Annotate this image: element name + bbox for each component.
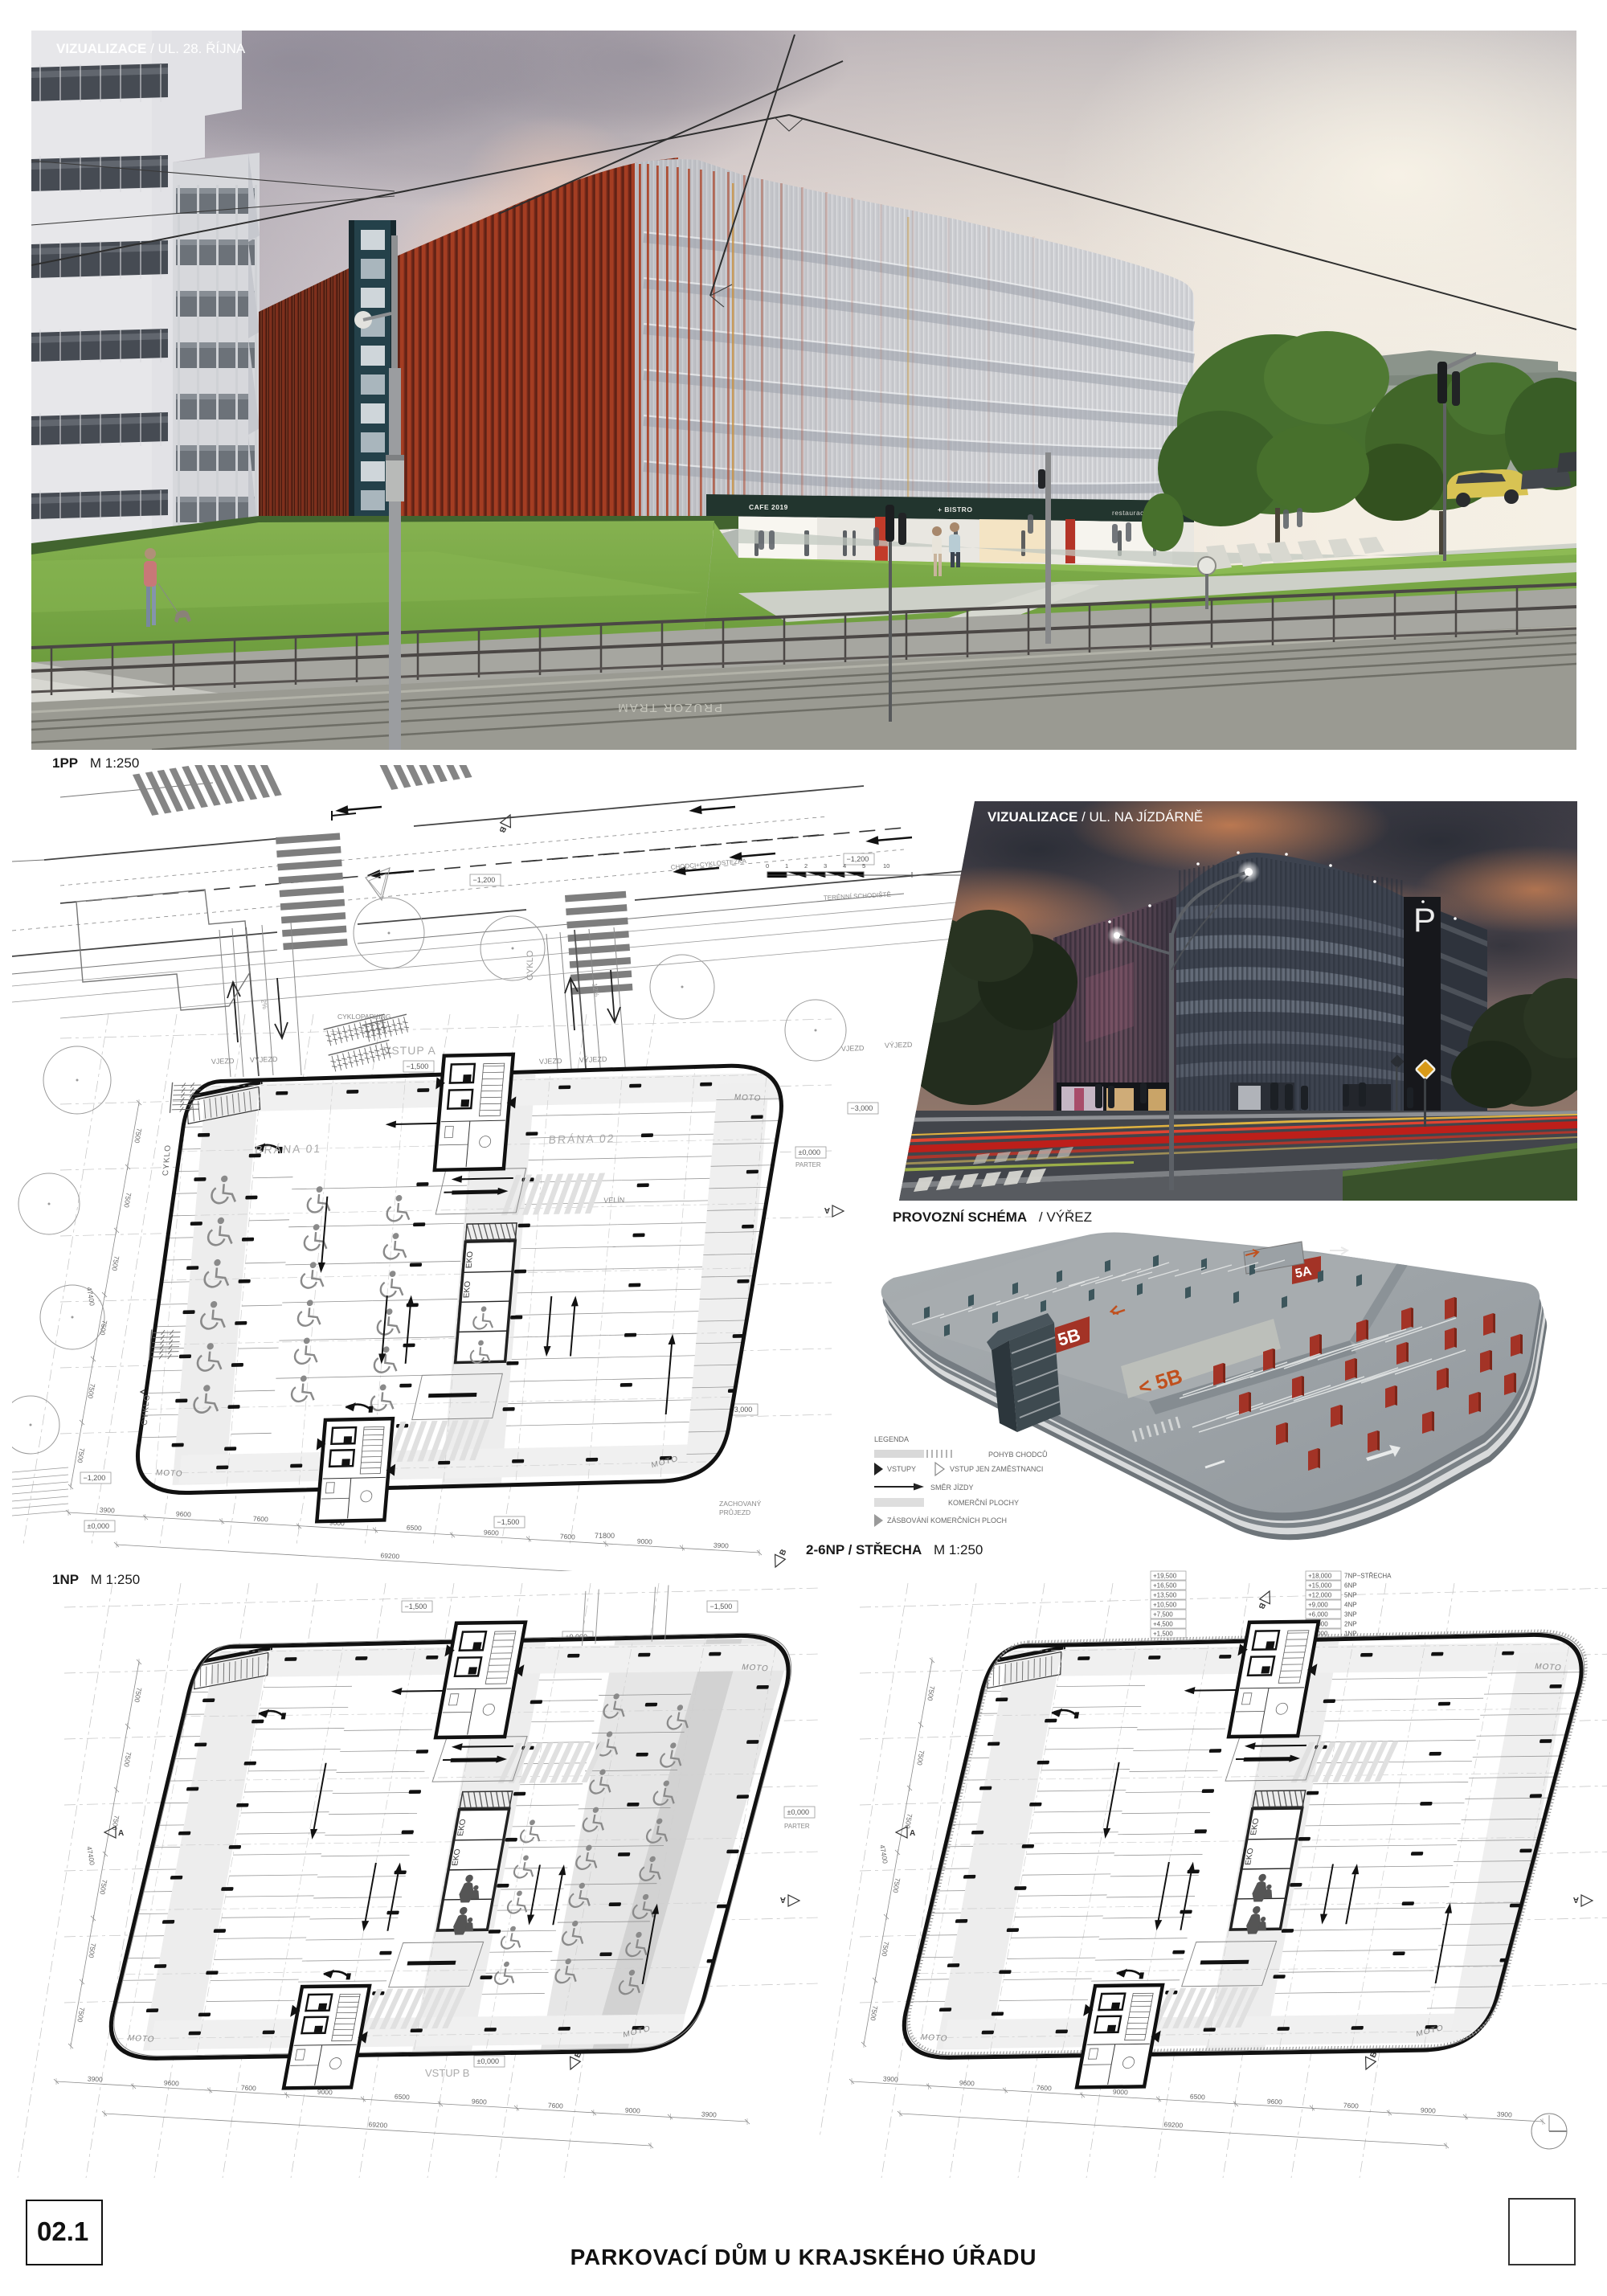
svg-text:VSTUP JEN ZAMĚSTNANCI: VSTUP JEN ZAMĚSTNANCI (950, 1465, 1043, 1473)
svg-text:+16,500: +16,500 (1153, 1582, 1177, 1590)
svg-text:VELÍN: VELÍN (603, 1196, 625, 1205)
svg-text:MOTO: MOTO (741, 1663, 770, 1673)
svg-text:9000: 9000 (625, 2106, 641, 2114)
svg-text:VSTUPY: VSTUPY (887, 1465, 916, 1473)
svg-text:7600: 7600 (253, 1514, 269, 1523)
svg-text:+4,500: +4,500 (1153, 1621, 1173, 1628)
svg-text:3900: 3900 (883, 2074, 899, 2083)
svg-text:−1,200: −1,200 (473, 876, 496, 884)
svg-text:5NP: 5NP (1344, 1592, 1357, 1599)
svg-text:1: 1 (785, 862, 788, 870)
svg-text:71800: 71800 (595, 1532, 615, 1540)
svg-text:A: A (780, 1895, 786, 1904)
svg-text:CYKLO: CYKLO (162, 1144, 173, 1176)
svg-text:+13,500: +13,500 (1153, 1592, 1177, 1599)
svg-text:VJEZD: VJEZD (539, 1057, 562, 1066)
svg-text:3900: 3900 (714, 1541, 730, 1549)
svg-text:BRÁNA 01: BRÁNA 01 (255, 1142, 322, 1156)
svg-text:3900: 3900 (701, 2110, 718, 2118)
svg-text:VÝJEZD: VÝJEZD (250, 1055, 278, 1064)
svg-text:47400: 47400 (85, 1287, 96, 1307)
svg-text:+10,500: +10,500 (1153, 1602, 1177, 1609)
svg-text:VIZUALIZACE / UL. NA JÍZDÁRNĚ: VIZUALIZACE / UL. NA JÍZDÁRNĚ (988, 809, 1203, 825)
svg-text:±0,000: ±0,000 (88, 1522, 109, 1530)
svg-text:3: 3 (824, 862, 827, 870)
svg-text:PRŮJEZD: PRŮJEZD (719, 1508, 750, 1516)
svg-text:9600: 9600 (1267, 2097, 1283, 2106)
svg-text:PARTER: PARTER (784, 1823, 810, 1830)
svg-text:4NP: 4NP (1344, 1602, 1357, 1609)
svg-text:6NP: 6NP (1344, 1582, 1357, 1590)
svg-text:PARTER: PARTER (795, 1161, 821, 1168)
svg-text:9000: 9000 (637, 1537, 653, 1545)
svg-text:9000: 9000 (1421, 2106, 1437, 2114)
svg-text:+18,000: +18,000 (1308, 1573, 1332, 1580)
svg-text:9600: 9600 (484, 1528, 500, 1537)
svg-text:3NP: 3NP (1344, 1611, 1357, 1619)
svg-text:9600: 9600 (472, 2097, 488, 2106)
svg-text:VSTUP A: VSTUP A (383, 1044, 436, 1057)
svg-text:9600: 9600 (164, 2078, 180, 2087)
svg-text:2%: 2% (260, 999, 269, 1010)
svg-text:KOMERČNÍ PLOCHY: KOMERČNÍ PLOCHY (948, 1499, 1019, 1507)
svg-text:A: A (910, 1829, 915, 1838)
svg-text:7600: 7600 (548, 2101, 564, 2110)
svg-text:MOTO: MOTO (920, 2033, 949, 2044)
svg-text:7500: 7500 (110, 1255, 121, 1272)
svg-text:12%: 12% (591, 983, 601, 998)
svg-text:7500: 7500 (903, 1813, 914, 1830)
svg-text:MOTO: MOTO (127, 2034, 156, 2044)
svg-text:2: 2 (804, 862, 808, 870)
svg-text:CYKLOPARKING: CYKLOPARKING (337, 1013, 391, 1021)
svg-text:69200: 69200 (1163, 2120, 1183, 2129)
svg-text:+19,500: +19,500 (1153, 1573, 1177, 1580)
svg-text:−1,500: −1,500 (710, 1602, 733, 1610)
svg-text:MOTO: MOTO (155, 1468, 183, 1479)
svg-text:7600: 7600 (241, 2083, 257, 2092)
svg-text:47400: 47400 (878, 1844, 889, 1864)
svg-text:BRÁNA 02: BRÁNA 02 (548, 1132, 615, 1146)
svg-text:EKO: EKO (464, 1251, 475, 1269)
svg-text:+ BISTRO: + BISTRO (938, 505, 972, 514)
svg-text:MOTO: MOTO (734, 1093, 762, 1103)
svg-text:+7,500: +7,500 (1153, 1611, 1173, 1619)
svg-text:SMĚR JÍZDY: SMĚR JÍZDY (930, 1484, 974, 1492)
svg-text:47400: 47400 (85, 1846, 96, 1866)
svg-text:−1,500: −1,500 (497, 1518, 520, 1526)
svg-text:+1,500: +1,500 (1153, 1631, 1173, 1638)
svg-text:7600: 7600 (1343, 2101, 1360, 2110)
svg-text:9600: 9600 (959, 2078, 975, 2087)
svg-text:69200: 69200 (368, 2120, 387, 2129)
svg-text:3900: 3900 (88, 2074, 104, 2083)
svg-text:A: A (1573, 1895, 1579, 1904)
svg-text:±0,000: ±0,000 (477, 2057, 499, 2065)
svg-text:VJEZD: VJEZD (211, 1057, 235, 1066)
svg-text:+12,000: +12,000 (1308, 1592, 1332, 1599)
svg-text:CYKLO: CYKLO (525, 950, 535, 980)
svg-text:MOTO: MOTO (1534, 1662, 1563, 1672)
svg-text:0: 0 (766, 862, 769, 870)
svg-text:VSTUP B: VSTUP B (425, 2067, 469, 2079)
svg-text:PRUZOR TRAM: PRUZOR TRAM (616, 701, 722, 714)
svg-text:9600: 9600 (176, 1509, 192, 1518)
svg-text:7NP−STŘECHA: 7NP−STŘECHA (1344, 1573, 1392, 1580)
svg-text:10: 10 (883, 862, 889, 870)
svg-text:5: 5 (862, 862, 865, 870)
svg-text:7500: 7500 (122, 1192, 133, 1209)
svg-text:POHYB CHODCŮ: POHYB CHODCŮ (988, 1450, 1048, 1459)
svg-text:6500: 6500 (395, 2092, 411, 2101)
svg-text:P: P (1413, 901, 1436, 939)
svg-text:69200: 69200 (380, 1551, 399, 1560)
svg-text:ZÁSBOVÁNÍ KOMERČNÍCH PLOCH: ZÁSBOVÁNÍ KOMERČNÍCH PLOCH (887, 1516, 1007, 1525)
svg-text:7600: 7600 (560, 1532, 576, 1541)
svg-text:+6,000: +6,000 (1308, 1611, 1328, 1619)
svg-text:6500: 6500 (407, 1523, 423, 1532)
svg-text:3900: 3900 (1497, 2110, 1513, 2118)
svg-text:7500: 7500 (915, 1750, 926, 1766)
svg-text:−1,500: −1,500 (407, 1062, 429, 1070)
svg-text:A: A (118, 1829, 124, 1838)
svg-text:+9,000: +9,000 (1308, 1602, 1328, 1609)
svg-text:±0,000: ±0,000 (787, 1808, 809, 1816)
svg-text:EKO: EKO (462, 1281, 472, 1299)
svg-text:VÝJEZD: VÝJEZD (579, 1055, 607, 1064)
svg-text:7500: 7500 (122, 1751, 133, 1768)
svg-text:B: B (497, 825, 507, 833)
svg-text:6500: 6500 (1190, 2092, 1206, 2101)
svg-text:7500: 7500 (86, 1383, 96, 1400)
svg-text:−1,500: −1,500 (405, 1602, 427, 1610)
svg-text:TERÉNNÍ SCHODIŠTĚ: TERÉNNÍ SCHODIŠTĚ (824, 891, 891, 902)
svg-text:−1,200: −1,200 (84, 1474, 106, 1482)
svg-text:LEGENDA: LEGENDA (874, 1435, 909, 1443)
svg-text:VJEZD: VJEZD (841, 1044, 865, 1053)
svg-text:CAFE 2019: CAFE 2019 (749, 503, 788, 511)
svg-text:4: 4 (843, 862, 846, 870)
svg-text:±0,000: ±0,000 (799, 1148, 820, 1156)
svg-text:ZACHOVANÝ: ZACHOVANÝ (719, 1500, 762, 1508)
svg-text:−3,000: −3,000 (851, 1104, 873, 1112)
svg-text:9000: 9000 (1113, 2087, 1129, 2096)
svg-text:+15,000: +15,000 (1308, 1582, 1332, 1590)
svg-text:B: B (779, 1548, 789, 1557)
svg-text:B: B (1256, 1601, 1266, 1610)
svg-text:7600: 7600 (1037, 2083, 1053, 2092)
svg-text:2NP: 2NP (1344, 1621, 1357, 1628)
svg-text:VIZUALIZACE / UL. 28. ŘÍJNA: VIZUALIZACE / UL. 28. ŘÍJNA (56, 41, 246, 56)
svg-text:A: A (824, 1205, 830, 1214)
svg-text:3900: 3900 (100, 1505, 116, 1514)
